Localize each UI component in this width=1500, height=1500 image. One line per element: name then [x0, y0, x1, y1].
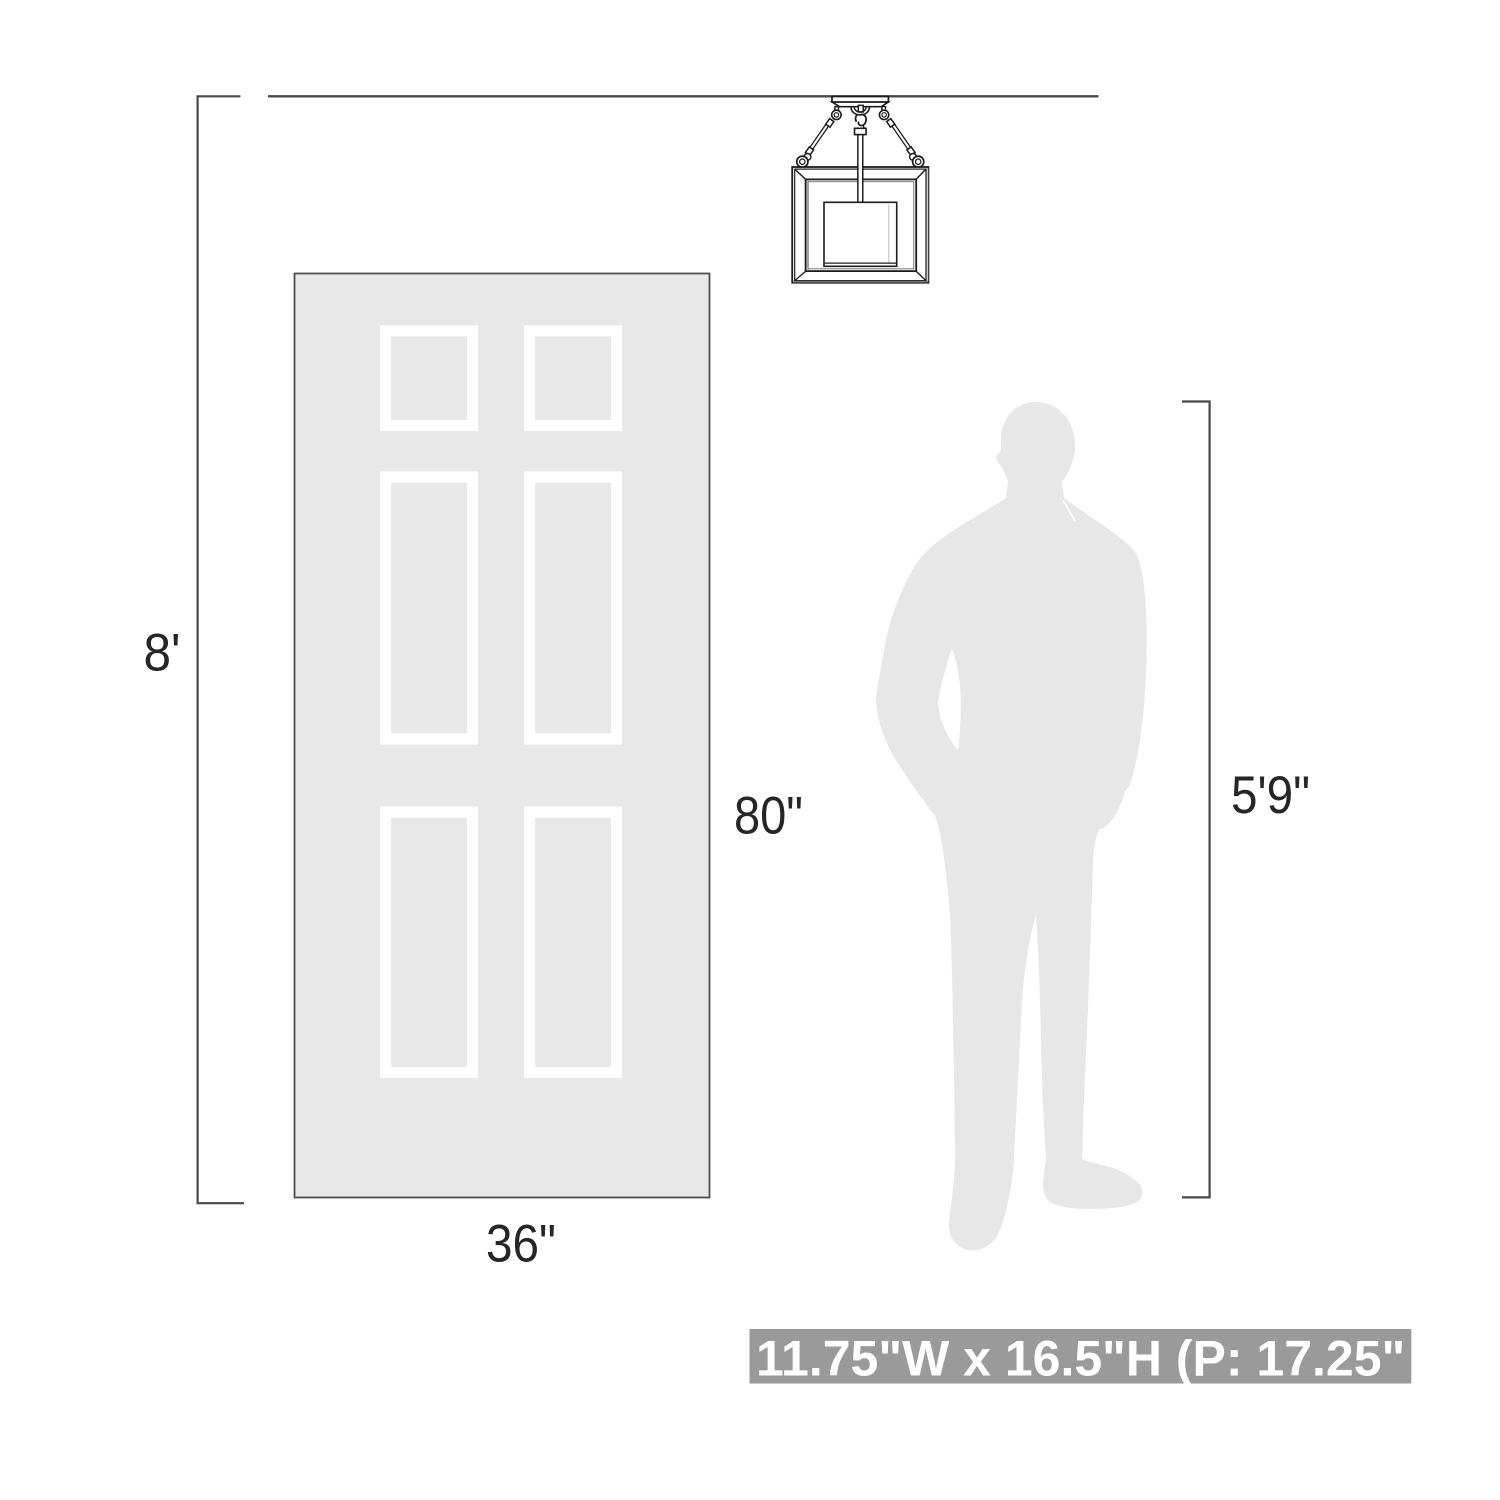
svg-text:36": 36" — [486, 1215, 556, 1274]
svg-text:80": 80" — [734, 787, 803, 846]
svg-text:11.75"W x 16.5"H (P: 17.25": 11.75"W x 16.5"H (P: 17.25" — [756, 1331, 1405, 1387]
svg-text:5'9": 5'9" — [1231, 766, 1310, 825]
svg-text:8': 8' — [144, 624, 181, 683]
